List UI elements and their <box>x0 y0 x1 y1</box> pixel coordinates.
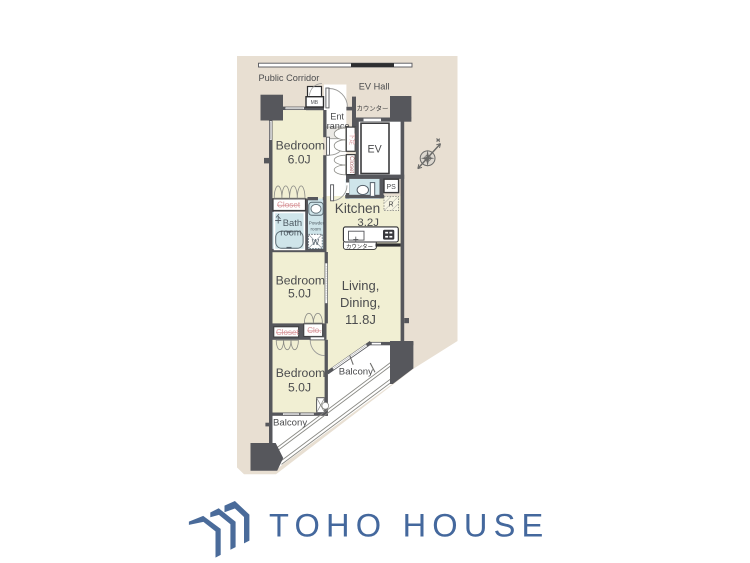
svg-text:Kitchen: Kitchen <box>335 201 380 216</box>
svg-text:room: room <box>280 227 302 238</box>
svg-text:TOHO HOUSE: TOHO HOUSE <box>269 506 549 543</box>
svg-text:Balcony: Balcony <box>339 367 373 378</box>
svg-text:EV Hall: EV Hall <box>359 81 390 91</box>
svg-text:Closet: Closet <box>276 328 299 337</box>
svg-text:Closet: Closet <box>348 156 354 173</box>
svg-text:Clo.: Clo. <box>307 326 321 335</box>
svg-text:下足: 下足 <box>348 133 355 145</box>
svg-text:Bedroom: Bedroom <box>276 273 325 287</box>
svg-text:Balcony: Balcony <box>273 417 307 428</box>
svg-text:EV: EV <box>368 144 383 156</box>
svg-text:MB: MB <box>311 100 319 106</box>
svg-text:Ent: Ent <box>330 112 344 122</box>
svg-text:PS: PS <box>387 184 397 191</box>
svg-text:Closet: Closet <box>277 201 301 210</box>
svg-text:Public Corridor: Public Corridor <box>259 73 320 83</box>
svg-text:Dining,: Dining, <box>340 295 380 310</box>
svg-text:Living,: Living, <box>342 278 380 293</box>
svg-text:6.0J: 6.0J <box>288 152 311 166</box>
svg-text:Powder: Powder <box>309 221 325 226</box>
svg-text:5.0J: 5.0J <box>288 286 311 300</box>
svg-text:Bedroom: Bedroom <box>276 139 325 153</box>
svg-text:カウンター: カウンター <box>346 242 373 250</box>
svg-text:Bedroom: Bedroom <box>276 366 325 380</box>
svg-text:room: room <box>311 227 322 232</box>
svg-text:W: W <box>312 238 320 247</box>
svg-text:5.0J: 5.0J <box>288 380 311 394</box>
svg-text:カウンター: カウンター <box>357 104 389 113</box>
svg-text:R: R <box>389 201 394 208</box>
svg-text:11.8J: 11.8J <box>345 312 376 327</box>
